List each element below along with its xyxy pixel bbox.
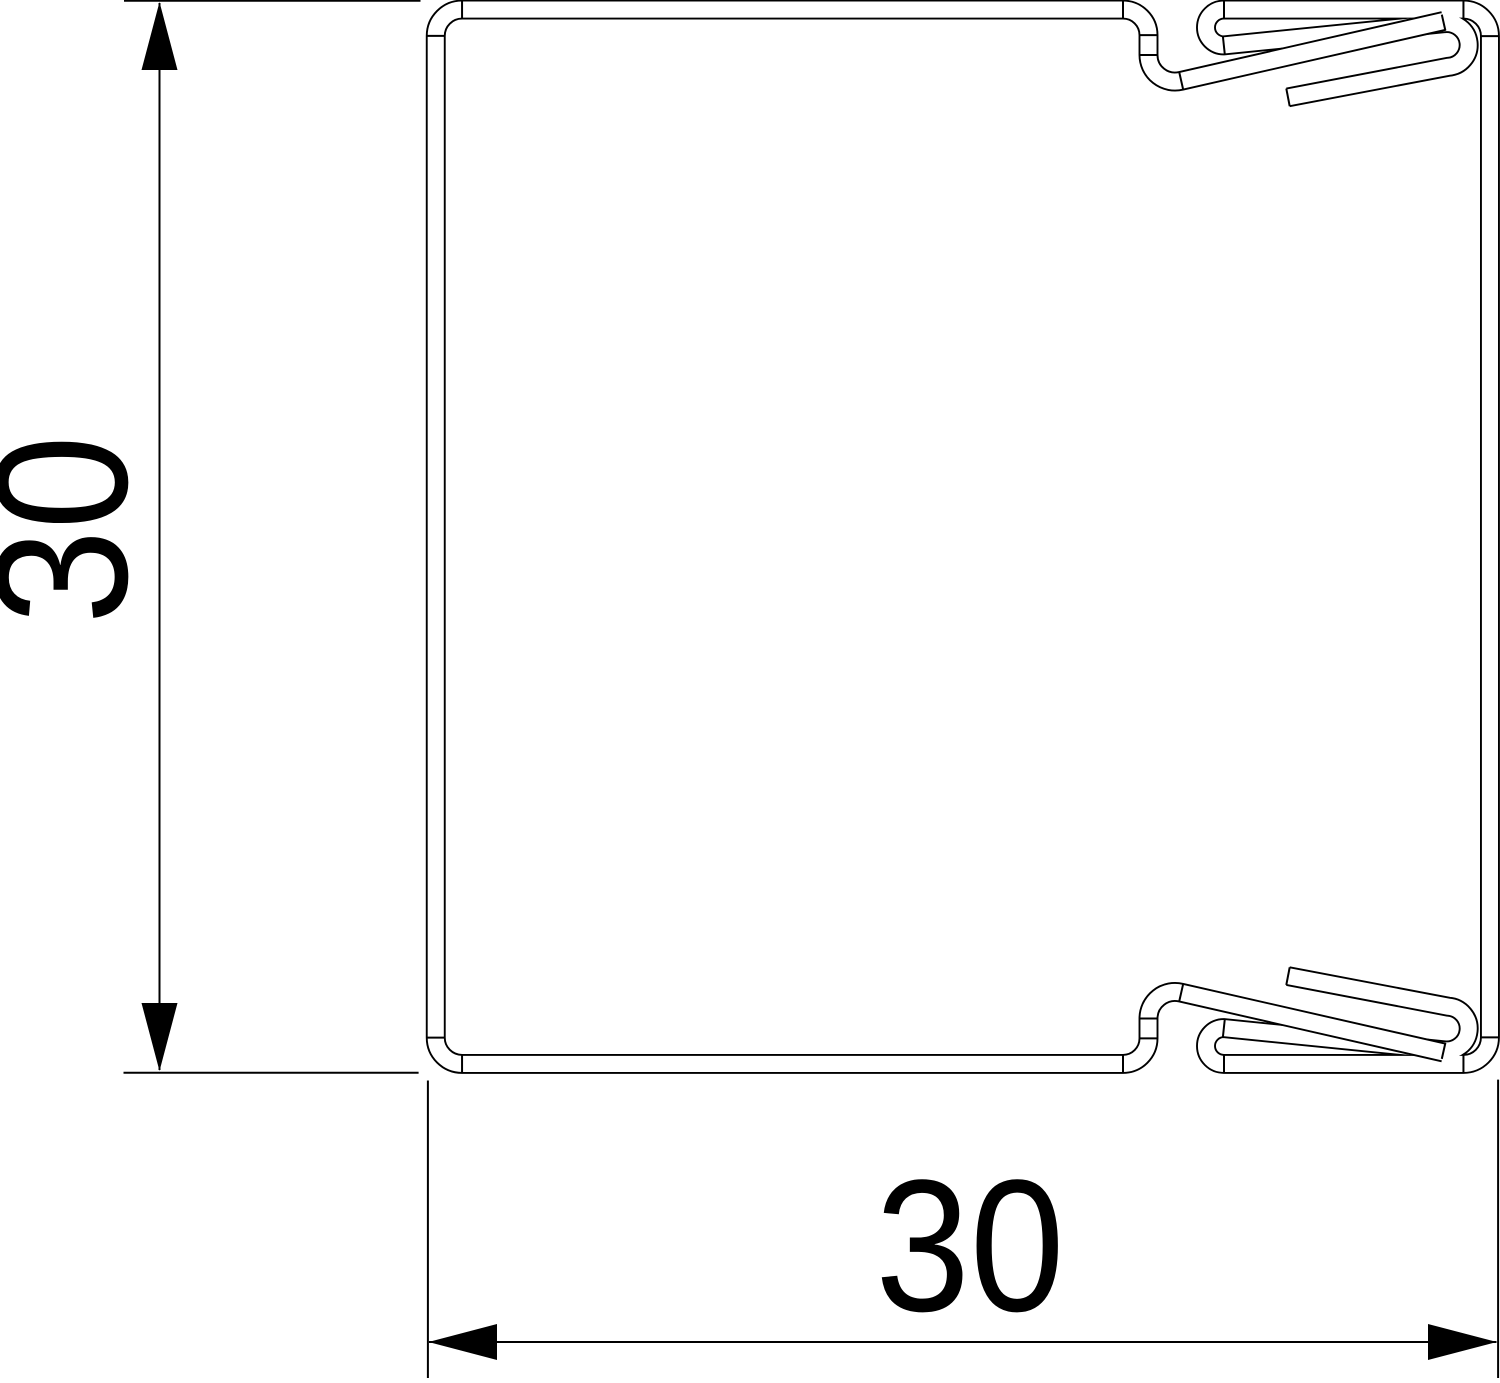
svg-text:30: 30	[875, 1141, 1064, 1351]
svg-text:30: 30	[0, 435, 166, 624]
